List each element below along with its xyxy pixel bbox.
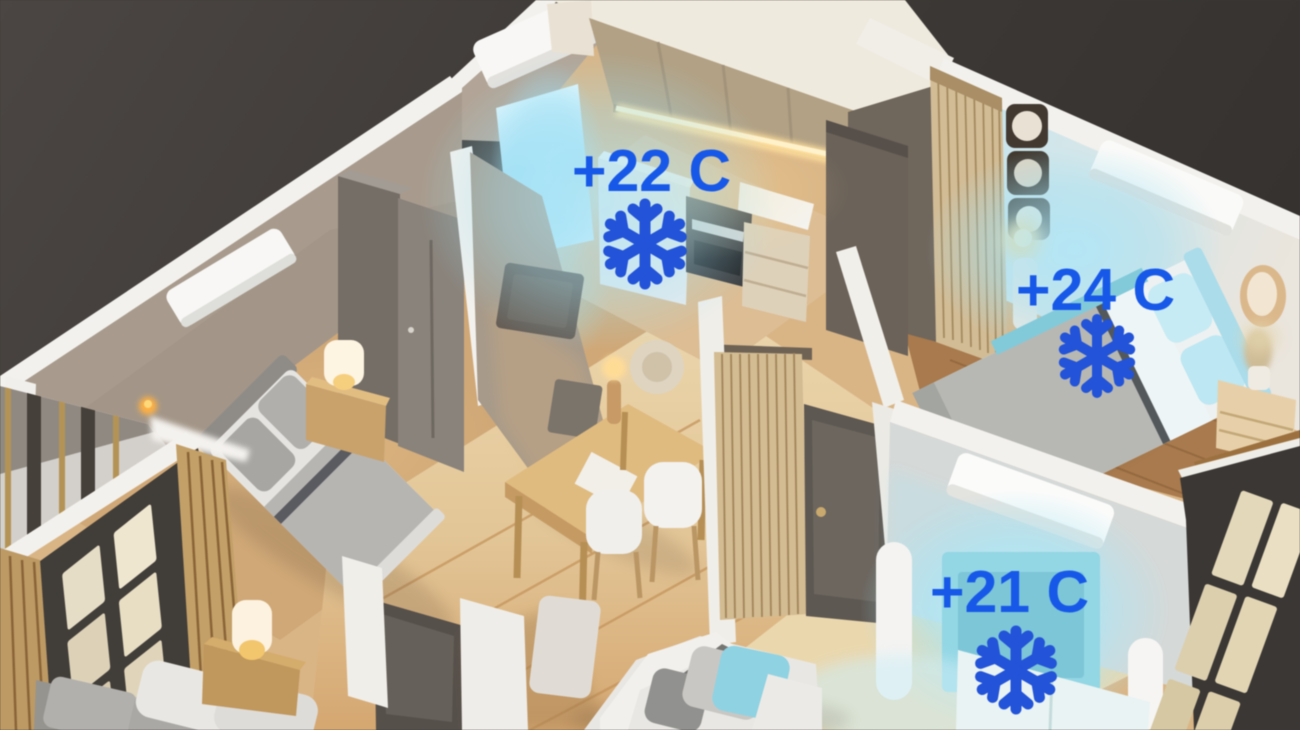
svg-text:+22 C: +22 C xyxy=(572,138,731,204)
svg-text:+21 C: +21 C xyxy=(930,559,1089,625)
svg-text:+24 C: +24 C xyxy=(1016,257,1175,323)
